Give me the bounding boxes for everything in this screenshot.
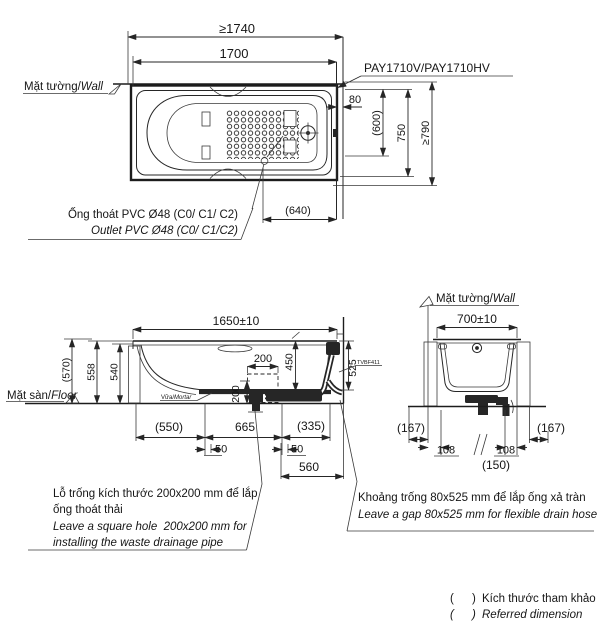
- end-wall-right: [517, 342, 530, 406]
- dim-outlet-position: (640): [263, 168, 337, 223]
- legend-en-line: ()Referred dimension: [450, 609, 582, 621]
- svg-text:Mặt tường/Wall: Mặt tường/Wall: [436, 293, 515, 305]
- rim-fitting-left: [439, 344, 447, 349]
- hole-note: Lỗ trống kích thước 200x200 mm để lắp ốn…: [28, 487, 257, 550]
- dim-167-right: (167): [537, 421, 565, 435]
- dim-length: 1700: [220, 46, 249, 61]
- model-label: PAY1710V/PAY1710HV: [364, 61, 490, 75]
- dim-inner-width: (600): [371, 110, 383, 136]
- technical-drawing-page: ≥1740 1700 Mặt tường/Wall PAY1710V/PAY17…: [0, 0, 600, 630]
- plan-view: ≥1740 1700 Mặt tường/Wall PAY1710V/PAY17…: [23, 21, 513, 240]
- dim-108-left: 108: [437, 445, 455, 457]
- hole-note-en1: Leave a square hole 200x200 mm for: [53, 521, 248, 533]
- mortar-column: [129, 346, 141, 403]
- svg-text:700±10: 700±10: [457, 312, 497, 326]
- svg-text:1650±10: 1650±10: [213, 314, 260, 328]
- outlet-label-vi: Ống thoát PVC Ø48 (C0/ C1/ C2): [68, 207, 238, 221]
- dim-50a: 50: [215, 444, 227, 456]
- hole-note-en2: installing the waste drainage pipe: [53, 537, 223, 549]
- legend-vi-line: ()Kích thước tham khảo: [450, 593, 596, 605]
- side-bottom-dims: (550) 665 (335) 50 50 560: [136, 404, 344, 480]
- gap-note: Khoảng trống 80x525 mm để lắp ống xả trà…: [347, 491, 597, 531]
- svg-text:450: 450: [284, 353, 296, 371]
- dim-150: (150): [482, 458, 510, 472]
- annotation-notes: Lỗ trống kích thước 200x200 mm để lắp ốn…: [28, 487, 597, 550]
- dim-335: (335): [297, 419, 325, 433]
- model-label-group: PAY1710V/PAY1710HV: [338, 61, 513, 88]
- svg-text:(640): (640): [285, 205, 311, 217]
- end-bottom-dims: (167) (167) 108 108 (150): [397, 407, 565, 473]
- dim-50b: 50: [291, 444, 303, 456]
- dim-height-inner: 540: [109, 363, 121, 381]
- svg-text:80: 80: [349, 94, 361, 106]
- waste-trap: [249, 392, 263, 403]
- dim-height-total: (570): [61, 358, 73, 383]
- outlet-label-en: Outlet PVC Ø48 (C0/ C1/C2): [91, 225, 238, 237]
- dim-total-length: ≥1740: [219, 21, 255, 36]
- wall-arrow-icon: [109, 84, 121, 94]
- drain-valve-body: [266, 391, 322, 402]
- end-section-view: Mặt tường/Wall 700±10: [397, 293, 565, 472]
- dim-550: (550): [155, 420, 183, 434]
- legend: ()Kích thước tham khảo ()Referred dimens…: [450, 593, 596, 621]
- dim-560: 560: [299, 460, 319, 474]
- end-wall-left: [424, 342, 437, 406]
- end-drain-piping: [465, 395, 513, 416]
- waste-outlet-stub: [252, 402, 260, 411]
- dim-end-width: 700±10: [437, 312, 517, 338]
- valve-label-group: TVBF411: [339, 360, 382, 372]
- dim-side-length: 1650±10: [133, 314, 337, 339]
- dim-height-rim: 558: [86, 363, 98, 381]
- dim-width: 750: [396, 124, 408, 142]
- overflow-slot: [218, 345, 252, 352]
- dim-hole-width: 200: [254, 353, 272, 365]
- drain-symbol: [298, 123, 319, 144]
- end-tub-section: [433, 340, 521, 392]
- hole-note-vi1: Lỗ trống kích thước 200x200 mm để lắp: [53, 487, 257, 500]
- mortar-label: Vữa/Mortar: [160, 393, 212, 401]
- overflow-mark: [333, 129, 338, 137]
- dim-108-right: 108: [497, 445, 515, 457]
- gap-note-en: Leave a gap 80x525 mm for flexible drain…: [358, 509, 597, 521]
- plan-wall-label: Mặt tường/Wall: [23, 81, 121, 94]
- svg-text:Mặt sàn/Floor: Mặt sàn/Floor: [7, 390, 78, 402]
- svg-text:Mặt tường/Wall: Mặt tường/Wall: [24, 81, 103, 93]
- hole-note-vi2: ống thoát thải: [53, 504, 123, 516]
- rim-fitting-right: [508, 344, 516, 349]
- floor-label: Mặt sàn/Floor: [6, 390, 79, 403]
- gap-note-vi: Khoảng trống 80x525 mm để lắp ống xả trà…: [358, 491, 586, 504]
- dim-167-left: (167): [397, 421, 425, 435]
- dim-hole-height: 200: [230, 385, 242, 403]
- dim-665: 665: [235, 420, 255, 434]
- dim-total-width: ≥790: [420, 121, 432, 145]
- overflow-fitting: [326, 342, 340, 355]
- bathtub-installation-drawing: ≥1740 1700 Mặt tường/Wall PAY1710V/PAY17…: [0, 0, 600, 630]
